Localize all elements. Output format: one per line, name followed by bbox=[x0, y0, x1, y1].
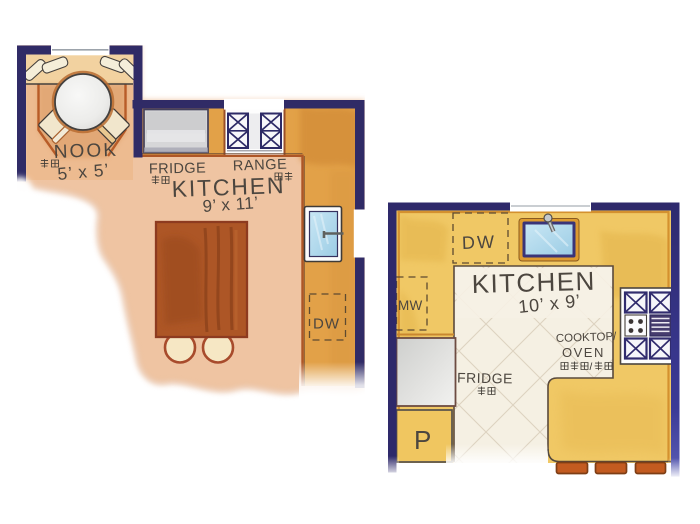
svg-text:DW: DW bbox=[313, 316, 340, 333]
svg-text:DW: DW bbox=[462, 232, 497, 253]
svg-text:/: / bbox=[590, 362, 593, 373]
svg-text:NOOK: NOOK bbox=[53, 140, 118, 163]
svg-text:MW: MW bbox=[398, 298, 422, 313]
svg-text:FRIDGE: FRIDGE bbox=[457, 370, 513, 387]
svg-text:9’ x 11’: 9’ x 11’ bbox=[202, 193, 259, 216]
svg-text:OVEN: OVEN bbox=[562, 345, 605, 360]
svg-text:COOKTOP/: COOKTOP/ bbox=[556, 331, 618, 345]
svg-text:P: P bbox=[414, 425, 431, 455]
